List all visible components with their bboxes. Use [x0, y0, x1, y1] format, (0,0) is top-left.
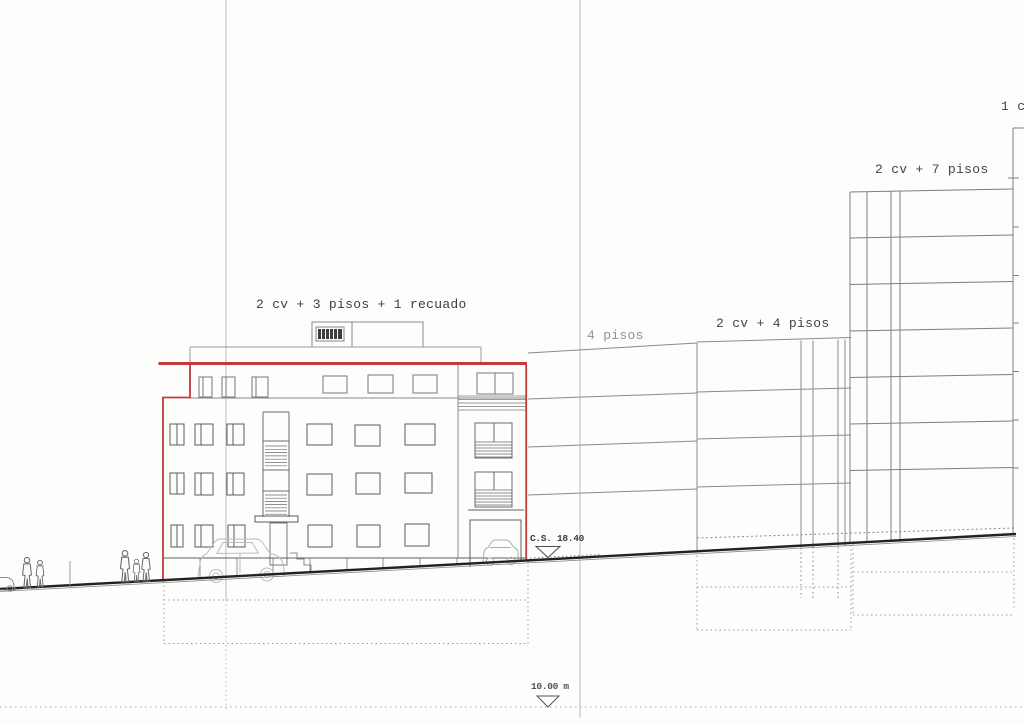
label-edge-clipped: 1 c [1001, 99, 1024, 114]
recuado-parapet [190, 347, 481, 363]
building-4pisos [528, 343, 697, 551]
section-lines [226, 0, 580, 718]
elevation-drawing [0, 0, 1024, 725]
label-2cv-4pisos: 2 cv + 4 pisos [716, 316, 829, 331]
elevation-sheet: 2 cv + 3 pisos + 1 recuado 4 pisos 2 cv … [0, 0, 1024, 725]
label-reference-depth: 10.00 m [531, 681, 569, 692]
pedestrian [120, 551, 129, 582]
pedestrian [23, 557, 32, 587]
entrance-steps [290, 553, 311, 572]
facade-base [163, 558, 527, 578]
bay-balcony-windows [475, 423, 512, 507]
pedestrian [36, 560, 44, 587]
facade-windows [170, 424, 435, 547]
label-4pisos: 4 pisos [587, 328, 644, 343]
building-2cv-4pisos [697, 338, 851, 599]
roof-vent-grille [318, 329, 342, 339]
label-street-level: C.S. 18.40 [530, 533, 584, 544]
recuado-level [190, 373, 526, 398]
reference-level-marker [537, 696, 559, 707]
stair-core [263, 412, 289, 517]
pedestrian-child [133, 559, 140, 582]
label-2cv-7pisos: 2 cv + 7 pisos [875, 162, 988, 177]
basement-outlines [164, 534, 1014, 644]
building-2cv-7pisos [850, 189, 1013, 543]
pedestrian [142, 552, 150, 581]
label-main-building: 2 cv + 3 pisos + 1 recuado [256, 297, 467, 312]
